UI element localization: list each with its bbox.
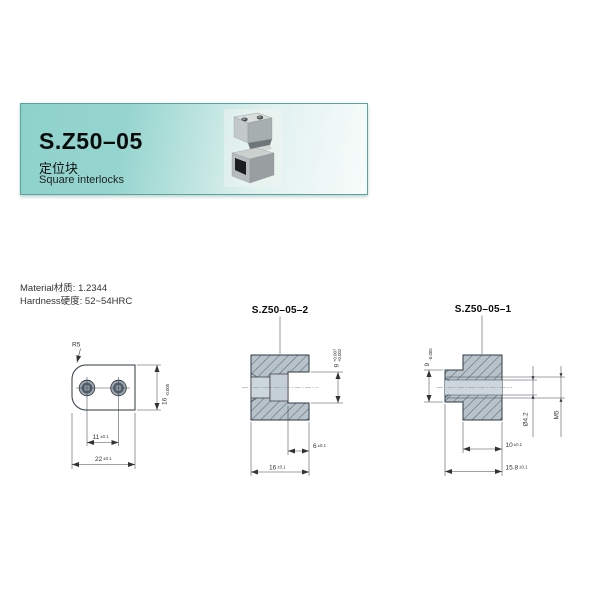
spacing-dim: 11±0.1 (93, 434, 110, 441)
product-banner: S.Z50–05 定位块 Square interlocks (20, 103, 368, 195)
depth-dim: 6±0.1 (313, 443, 327, 450)
radius-label: R5 (72, 342, 81, 349)
product-photo (224, 109, 282, 187)
drawing-section-2: S.Z50–05–2 9 +0.007 +0.002 6±0.1 16±0.1 (242, 305, 343, 476)
radius-leader (77, 349, 81, 363)
width-dim: 16±0.1 (269, 465, 286, 472)
section-2-title: S.Z50–05–2 (252, 305, 309, 316)
thread-dim: M5 (554, 410, 561, 419)
total-dim: 15.8±0.1 (506, 465, 529, 472)
slot-dim: 9 (334, 364, 341, 368)
height-dim-tol: -0.005 (165, 383, 170, 396)
drawing-section-1: S.Z50–05–1 9 -0.005 Ø4.2 M5 10±0.1 (424, 304, 565, 476)
technical-drawings: R5 16 -0.005 11±0.1 22±0.1 S.Z50–05–2 9 … (30, 290, 585, 490)
tongue-dim: 9 (424, 363, 431, 367)
width-dim: 22±0.1 (95, 456, 112, 463)
slot-dim-tol-lower: +0.002 (337, 348, 342, 362)
tongue-dim-tol: -0.005 (428, 348, 433, 361)
hole-dim: Ø4.2 (523, 412, 530, 426)
product-subtitle-en: Square interlocks (39, 174, 124, 186)
drawing-top-view: R5 16 -0.005 11±0.1 22±0.1 (72, 342, 170, 470)
height-dim: 16 (162, 397, 169, 405)
body-dim: 10±0.1 (506, 442, 523, 449)
section-1-title: S.Z50–05–1 (455, 304, 512, 315)
product-title: S.Z50–05 (39, 128, 143, 155)
